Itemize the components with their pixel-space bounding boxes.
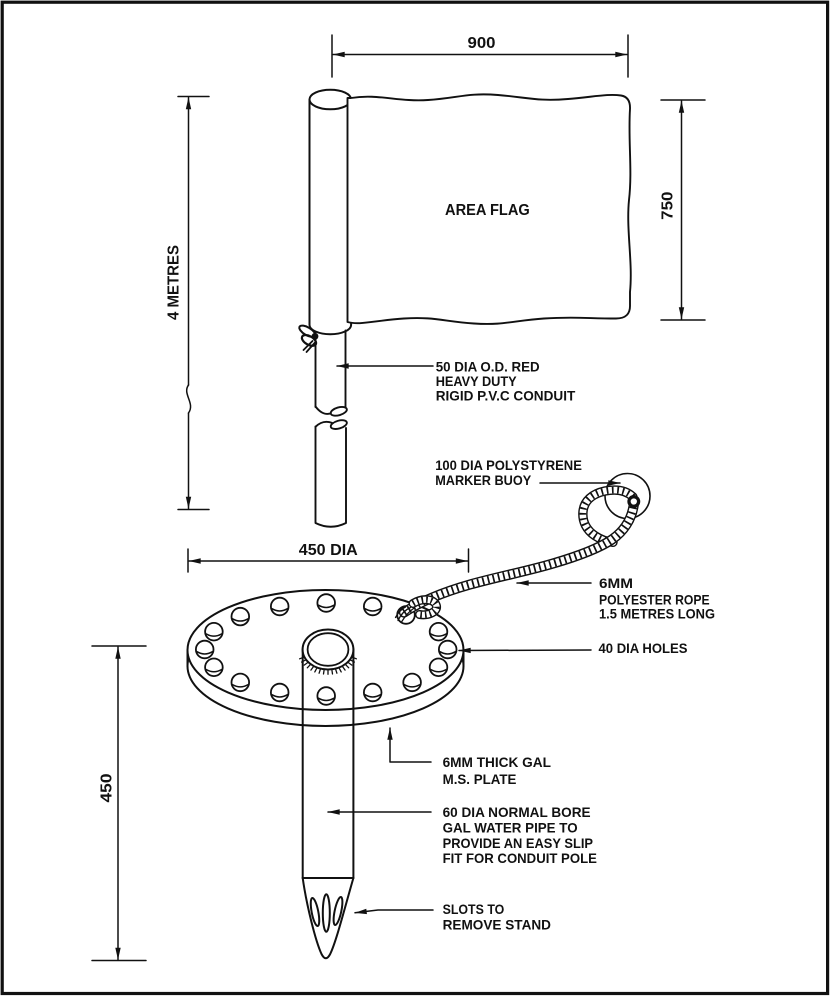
svg-text:450 DIA: 450 DIA [299, 542, 358, 559]
svg-text:AREA FLAG: AREA FLAG [445, 202, 530, 219]
svg-text:1.5 METRES LONG: 1.5 METRES LONG [599, 605, 715, 621]
svg-text:SLOTS TO: SLOTS TO [443, 901, 505, 917]
svg-text:40 DIA HOLES: 40 DIA HOLES [599, 640, 688, 656]
svg-text:60 DIA NORMAL BORE: 60 DIA NORMAL BORE [443, 804, 591, 820]
svg-text:RIGID P.V.C CONDUIT: RIGID P.V.C CONDUIT [436, 388, 576, 404]
svg-text:6MM: 6MM [599, 575, 633, 591]
svg-text:M.S. PLATE: M.S. PLATE [443, 771, 517, 787]
svg-text:6MM THICK GAL: 6MM THICK GAL [443, 754, 552, 770]
svg-text:REMOVE STAND: REMOVE STAND [443, 917, 551, 933]
svg-text:FIT FOR CONDUIT POLE: FIT FOR CONDUIT POLE [443, 850, 597, 866]
svg-text:900: 900 [468, 35, 496, 52]
svg-text:450: 450 [98, 773, 115, 802]
svg-text:4 METRES: 4 METRES [165, 245, 182, 320]
svg-text:GAL WATER PIPE TO: GAL WATER PIPE TO [443, 820, 578, 836]
svg-text:MARKER BUOY: MARKER BUOY [435, 472, 532, 488]
svg-text:HEAVY DUTY: HEAVY DUTY [436, 373, 518, 389]
svg-text:100 DIA POLYSTYRENE: 100 DIA POLYSTYRENE [435, 457, 582, 473]
svg-text:PROVIDE AN EASY SLIP: PROVIDE AN EASY SLIP [443, 835, 593, 851]
svg-text:750: 750 [660, 191, 677, 219]
